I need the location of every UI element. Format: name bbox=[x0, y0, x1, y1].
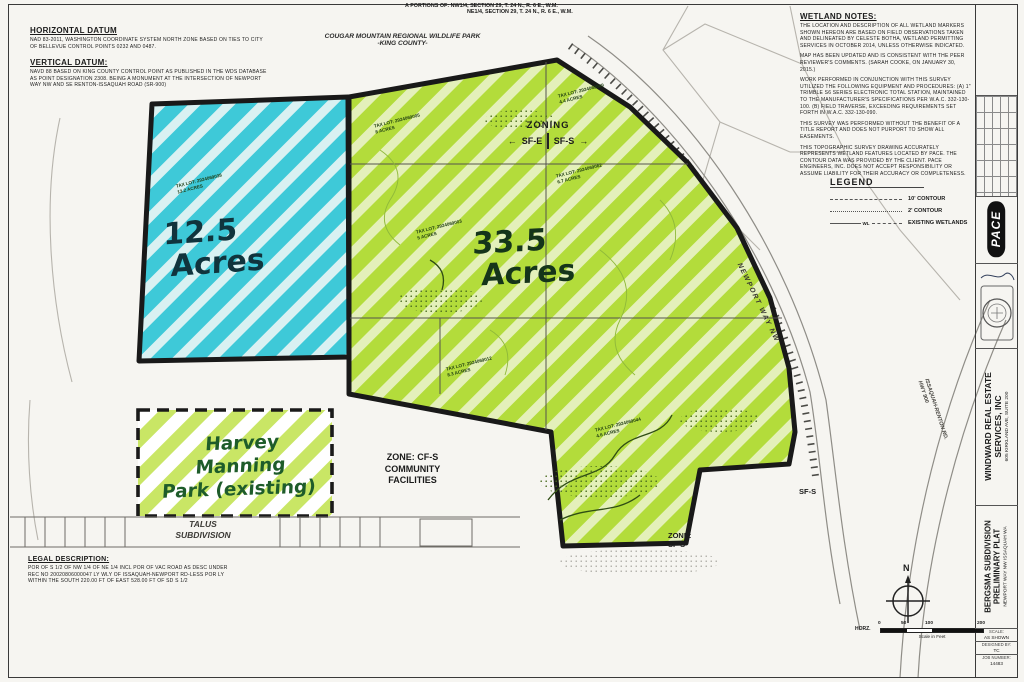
legal-description-title: LEGAL DESCRIPTION: bbox=[28, 556, 263, 563]
stamp-cell bbox=[975, 263, 1018, 349]
talus-line1: TALUS bbox=[128, 519, 278, 530]
legend-label: 2' CONTOUR bbox=[908, 208, 942, 214]
info-row-job: JOB NUMBER: 14483 bbox=[975, 654, 1018, 667]
info-row-scale: SCALE: AS SHOWN bbox=[975, 628, 1018, 641]
surveyor-seal-icon bbox=[977, 266, 1017, 346]
zone-sfs-line2: SF-S bbox=[668, 540, 691, 549]
zone-cfs-line2: COMMUNITY bbox=[345, 464, 480, 476]
revision-grid bbox=[976, 95, 1017, 197]
talus-subdivision-label: TALUS SUBDIVISION bbox=[128, 519, 278, 540]
client-cell: WINDWARD REAL ESTATE SERVICES, INC 605 K… bbox=[975, 348, 1018, 506]
legal-description: LEGAL DESCRIPTION: POR OF S 1/2 OF NW 1/… bbox=[28, 556, 263, 585]
plat-map-sheet: HORIZONTAL DATUM NAD 83-2011, WASHINGTON… bbox=[0, 0, 1024, 682]
zone-cfs-line1: ZONE: CF-S bbox=[345, 452, 480, 464]
project-title-line2: PRELIMINARY PLAT bbox=[993, 520, 1002, 612]
cougar-mountain-label: COUGAR MOUNTAIN REGIONAL WILDLIFE PARK -… bbox=[295, 33, 510, 47]
scale-tick-0: 0 bbox=[878, 621, 881, 626]
scale-tick-100: 100 bbox=[925, 621, 933, 626]
scale-caption: Scale in Feet bbox=[880, 634, 984, 639]
pace-logo: PACE bbox=[988, 201, 1006, 257]
blue-acres-unit: Acres bbox=[171, 244, 265, 282]
project-location: NEWPORT WAY NW ISSAQUAH WA bbox=[1004, 520, 1009, 612]
wetland-notes-title: WETLAND NOTES: bbox=[800, 12, 972, 21]
arrow-right-icon: → bbox=[579, 136, 588, 146]
zone-cfs-line3: FACILITIES bbox=[345, 475, 480, 487]
horizontal-datum-body: NAD 83-2011, WASHINGTON COORDINATE SYSTE… bbox=[30, 37, 268, 50]
legend-label: EXISTING WETLANDS bbox=[908, 220, 967, 226]
client-address: 605 KIRKLAND AVE, SUITE 200 bbox=[1005, 372, 1010, 481]
cougar-line1: COUGAR MOUNTAIN REGIONAL WILDLIFE PARK bbox=[295, 33, 510, 40]
pace-logo-cell: PACE bbox=[975, 195, 1018, 264]
contour-2ft-line-icon bbox=[830, 211, 902, 212]
section-reference: A PORTIONS OF: NW1/4, SECTION 29, T. 24 … bbox=[405, 3, 573, 15]
scale-bar: 0 50 100 200 Scale in Feet bbox=[880, 621, 984, 639]
horizontal-datum-title: HORIZONTAL DATUM bbox=[30, 26, 268, 35]
blue-area-acreage-label: 12.5 Acres bbox=[163, 212, 266, 282]
zone-sfs-line1: ZONE: bbox=[668, 531, 691, 540]
wetland-notes: WETLAND NOTES: THE LOCATION AND DESCRIPT… bbox=[800, 12, 972, 181]
wetland-note: WORK PERFORMED IN CONJUNCTION WITH THIS … bbox=[800, 77, 972, 117]
wetland-line-icon: WL bbox=[830, 221, 902, 226]
legend-item-10ft-contour: 10' CONTOUR bbox=[830, 196, 990, 202]
zoning-callout: ZONING ← SF-E SF-S → bbox=[468, 120, 628, 149]
north-label: N bbox=[903, 563, 910, 573]
vertical-datum-title: VERTICAL DATUM: bbox=[30, 58, 268, 67]
zone-cfs-label: ZONE: CF-S COMMUNITY FACILITIES bbox=[345, 452, 480, 487]
scale-tick-50: 50 bbox=[901, 621, 906, 626]
green-acres-unit: Acres bbox=[481, 255, 576, 292]
green-area-acreage-label: 33.5 Acres bbox=[471, 223, 577, 292]
wetland-note: THE LOCATION AND DESCRIPTION OF ALL WETL… bbox=[800, 23, 972, 49]
wetland-note: MAP HAS BEEN UPDATED AND IS CONSISTENT W… bbox=[800, 53, 972, 73]
legend-label: 10' CONTOUR bbox=[908, 196, 945, 202]
legend-title: LEGEND bbox=[830, 177, 924, 188]
harvey-manning-park-label: Harvey Manning Park (existing) bbox=[156, 429, 326, 504]
portions-line2: NE1/4, SECTION 29, T. 24 N., R. 6 E., W.… bbox=[405, 9, 573, 15]
project-title-line1: BERGSMA SUBDIVISION bbox=[984, 520, 993, 612]
talus-line2: SUBDIVISION bbox=[128, 530, 278, 541]
sfs-right-label: SF-S bbox=[799, 487, 816, 496]
scale-bar-segments bbox=[880, 628, 984, 633]
arrow-left-icon: ← bbox=[508, 136, 517, 146]
legend-item-2ft-contour: 2' CONTOUR bbox=[830, 208, 990, 214]
zoning-sfs-label: SF-S bbox=[554, 136, 575, 146]
datum-notes: HORIZONTAL DATUM NAD 83-2011, WASHINGTON… bbox=[30, 26, 268, 89]
scalebar-axis-label: HORZ. bbox=[855, 626, 871, 632]
zone-sfs-bottom-label: ZONE: SF-S bbox=[668, 531, 691, 550]
vertical-datum-body: NAVD 88 BASED ON KING COUNTY CONTROL POI… bbox=[30, 69, 268, 89]
zoning-sfe-label: SF-E bbox=[522, 136, 543, 146]
info-row-designed: DESIGNED BY: TC bbox=[975, 641, 1018, 654]
park-label-line1: Harvey Manning bbox=[157, 429, 325, 481]
contour-10ft-line-icon bbox=[830, 199, 902, 200]
legend-item-wetlands: WL EXISTING WETLANDS bbox=[830, 220, 990, 226]
wetland-note: THIS SURVEY WAS PERFORMED WITHOUT THE BE… bbox=[800, 121, 972, 141]
zoning-title: ZONING bbox=[468, 120, 628, 131]
legal-description-body: POR OF S 1/2 OF NW 1/4 OF NE 1/4 INCL PO… bbox=[28, 565, 238, 585]
client-name-line1: WINDWARD REAL ESTATE bbox=[983, 372, 993, 481]
project-cell: BERGSMA SUBDIVISION PRELIMINARY PLAT NEW… bbox=[975, 505, 1018, 629]
info-table: SCALE: AS SHOWN DESIGNED BY: TC JOB NUMB… bbox=[975, 628, 1018, 667]
client-name-line2: SERVICES, INC bbox=[993, 372, 1003, 481]
legend: LEGEND 10' CONTOUR 2' CONTOUR WL EXISTIN… bbox=[830, 172, 990, 232]
zoning-divider bbox=[547, 133, 549, 149]
cougar-line2: -KING COUNTY- bbox=[295, 40, 510, 47]
